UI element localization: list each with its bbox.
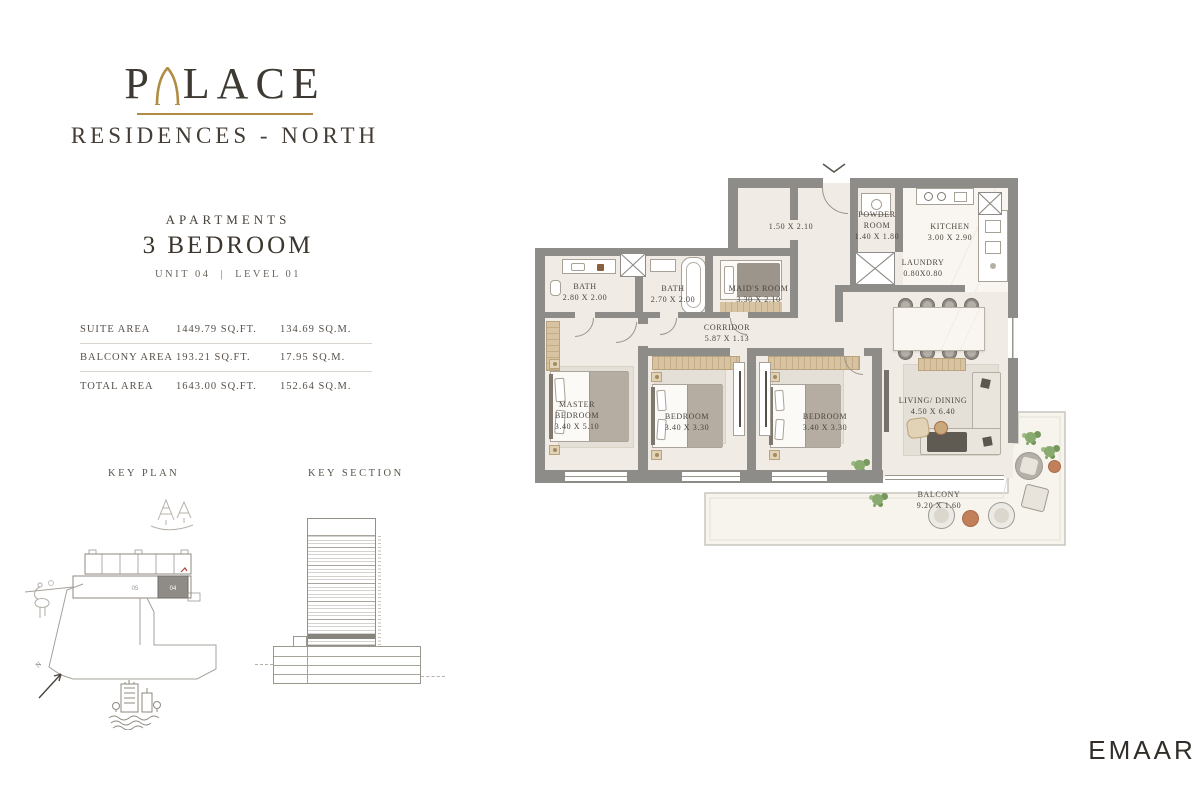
apartment-title: 3 BEDROOM xyxy=(118,232,338,260)
room-label-laundry: LAUNDRY 0.80X0.80 xyxy=(888,258,958,280)
wall xyxy=(1008,358,1018,443)
room-label-bedroom-2: BEDROOM 3.40 X 3.30 xyxy=(652,412,722,434)
balcony-lounge-chair xyxy=(1015,452,1043,480)
area-row-sqm: 17.95 SQ.M. xyxy=(280,352,370,363)
wall xyxy=(638,346,648,473)
section-podium xyxy=(273,646,421,684)
window xyxy=(1008,318,1018,358)
area-row-label: SUITE AREA xyxy=(80,324,176,335)
brand-logo: P LACE RESIDENCES - NORTH xyxy=(60,62,390,149)
balcony-chair xyxy=(988,502,1015,529)
wall xyxy=(595,312,660,318)
section-highlight-floor xyxy=(308,634,375,639)
apartment-category: APARTMENTS xyxy=(118,212,338,228)
balcony-side-table xyxy=(1048,460,1061,473)
coffee-table xyxy=(934,421,948,435)
room-label-corridor: CORRIDOR 5.87 X 1.13 xyxy=(682,323,772,345)
highlighted-unit-number: 04 xyxy=(170,586,177,592)
area-row-sqft: 1643.00 SQ.FT. xyxy=(176,381,280,392)
wall xyxy=(747,348,756,473)
section-tower xyxy=(307,518,376,646)
nightstand xyxy=(769,450,780,460)
dining-table xyxy=(893,307,985,351)
wall xyxy=(535,248,545,483)
wall xyxy=(535,248,790,256)
room-label-maids-room: MAID'S ROOM 3.30 X 2.10 xyxy=(716,284,801,306)
room-label-powder-room: POWDER ROOM 1.40 X 1.80 xyxy=(851,210,903,242)
wall xyxy=(748,312,790,318)
room-label-bath-1: BATH 2.80 X 2.00 xyxy=(555,282,615,304)
balcony-glass-door xyxy=(885,475,1004,480)
trees-icon xyxy=(151,500,193,530)
section-dash-right xyxy=(421,676,445,677)
nightstand xyxy=(651,450,662,460)
balcony-table xyxy=(962,510,979,527)
wall xyxy=(728,178,738,253)
brand-wordmark: P LACE xyxy=(60,62,390,106)
key-section-title: KEY SECTION xyxy=(308,468,404,479)
building-footprint: 04 05 xyxy=(73,550,200,601)
apartment-header: APARTMENTS 3 BEDROOM UNIT 04|LEVEL 01 xyxy=(118,212,338,280)
plant-icon xyxy=(872,494,883,505)
kitchen-hob-counter xyxy=(916,188,974,205)
wall xyxy=(678,312,730,318)
gold-divider xyxy=(137,113,313,115)
area-row-label: TOTAL AREA xyxy=(80,381,176,392)
flamingo-icon xyxy=(34,581,53,619)
wall xyxy=(638,348,730,356)
wall xyxy=(872,348,882,473)
unit-label: UNIT 04 xyxy=(155,269,211,280)
area-row-label: BALCONY AREA xyxy=(80,352,176,363)
wall xyxy=(790,240,798,318)
table-row: BALCONY AREA 193.21 SQ.FT. 17.95 SQ.M. xyxy=(80,344,372,372)
adjacent-unit-number: 05 xyxy=(132,586,139,592)
key-plan-drawing: 04 05 N xyxy=(25,492,240,730)
room-label-maids-bath: 1.50 X 2.10 xyxy=(761,222,821,233)
kitchen-sink-counter xyxy=(978,210,1008,282)
wardrobe-panel xyxy=(733,362,745,436)
window xyxy=(682,472,740,481)
plant-icon xyxy=(1044,446,1055,457)
unit-level-divider: | xyxy=(220,269,225,280)
svg-text:N: N xyxy=(34,660,43,669)
plant-icon xyxy=(1025,432,1036,443)
floor-plan: BATH 2.80 X 2.00 BATH 2.70 X 2.00 MAID'S… xyxy=(520,160,1098,555)
key-plan-diagram: 04 05 N xyxy=(25,492,240,730)
area-row-sqm: 134.69 SQ.M. xyxy=(280,324,370,335)
level-label: LEVEL 01 xyxy=(235,269,301,280)
brochure-page: P LACE RESIDENCES - NORTH APARTMENTS 3 B… xyxy=(0,0,1200,801)
section-floor-ticks xyxy=(378,536,381,646)
window xyxy=(565,472,627,481)
shaft xyxy=(978,192,1002,215)
wall xyxy=(728,178,823,188)
nightstand xyxy=(549,359,560,369)
section-dash-left xyxy=(255,664,273,665)
sofa-throw xyxy=(927,432,967,452)
brand-subtitle: RESIDENCES - NORTH xyxy=(60,123,390,149)
shaft xyxy=(620,253,646,277)
area-table: SUITE AREA 1449.79 SQ.FT. 134.69 SQ.M. B… xyxy=(80,316,372,400)
window xyxy=(772,472,827,481)
area-row-sqft: 1449.79 SQ.FT. xyxy=(176,324,280,335)
nightstand xyxy=(549,445,560,455)
pouf xyxy=(906,417,931,440)
section-podium-notch xyxy=(293,636,307,646)
wall xyxy=(1008,290,1018,318)
bedroom2-wardrobe xyxy=(652,356,740,370)
section-tower-cap xyxy=(308,519,375,536)
north-arrow-icon: N xyxy=(34,660,61,698)
media-console xyxy=(918,358,966,371)
key-section-diagram xyxy=(255,506,445,691)
wall xyxy=(790,188,798,220)
bath1-vanity xyxy=(562,259,616,274)
room-label-kitchen: KITCHEN 3.00 X 2.90 xyxy=(910,222,990,244)
wall xyxy=(705,256,713,318)
area-row-sqm: 152.64 SQ.M. xyxy=(280,381,370,392)
sofa xyxy=(920,428,1001,455)
table-row: TOTAL AREA 1643.00 SQ.FT. 152.64 SQ.M. xyxy=(80,372,372,400)
room-label-balcony: BALCONY 9.20 X 1.60 xyxy=(899,490,979,512)
table-row: SUITE AREA 1449.79 SQ.FT. 134.69 SQ.M. xyxy=(80,316,372,344)
bath2-vanity xyxy=(650,259,676,272)
city-waterfront-icon xyxy=(109,680,161,730)
room-label-master-bedroom: MASTER BEDROOM 3.40 X 5.10 xyxy=(544,400,610,432)
brand-name-prefix: P xyxy=(124,62,155,106)
area-row-sqft: 193.21 SQ.FT. xyxy=(176,352,280,363)
wall xyxy=(1008,178,1018,290)
room-label-bath-2: BATH 2.70 X 2.00 xyxy=(643,284,703,306)
wall xyxy=(545,312,575,318)
wall xyxy=(850,178,1018,188)
wardrobe-panel xyxy=(759,362,771,436)
wall xyxy=(835,285,843,322)
key-plan-title: KEY PLAN xyxy=(108,468,179,479)
wall xyxy=(835,285,965,292)
wall xyxy=(756,348,844,356)
unit-level-line: UNIT 04|LEVEL 01 xyxy=(118,269,338,280)
wall xyxy=(638,318,648,324)
emaar-logo: EMAAR xyxy=(1086,735,1198,766)
arch-icon xyxy=(154,67,181,105)
room-label-living-dining: LIVING/ DINING 4.50 X 6.40 xyxy=(883,396,983,418)
brand-name-suffix: LACE xyxy=(183,62,326,106)
room-label-bedroom-3: BEDROOM 3.40 X 3.30 xyxy=(790,412,860,434)
nightstand xyxy=(651,372,662,382)
